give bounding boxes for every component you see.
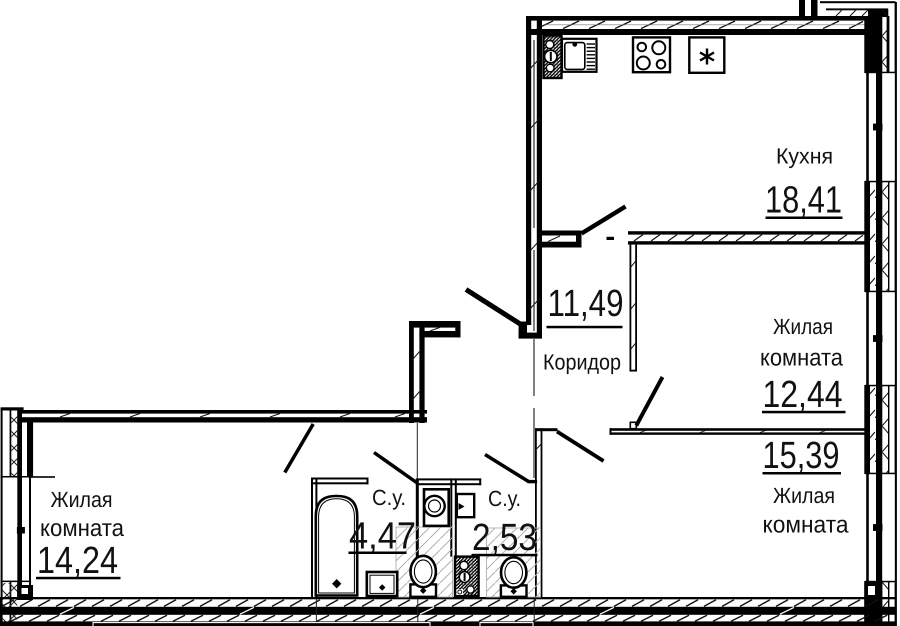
svg-text:18,41: 18,41 (765, 180, 842, 222)
svg-text:11,49: 11,49 (548, 283, 624, 325)
svg-text:Кухня: Кухня (776, 144, 833, 169)
svg-text:2,53: 2,53 (472, 517, 537, 559)
svg-text:комната: комната (763, 512, 850, 539)
svg-text:комната: комната (760, 345, 844, 372)
svg-text:Коридор: Коридор (543, 350, 621, 375)
svg-text:Жилая: Жилая (773, 483, 835, 508)
svg-text:С.у.: С.у. (488, 486, 521, 511)
svg-text:С.у.: С.у. (372, 485, 406, 510)
svg-text:15,39: 15,39 (763, 435, 840, 477)
svg-text:4,47: 4,47 (349, 516, 416, 558)
svg-text:12,44: 12,44 (763, 374, 843, 416)
svg-text:комната: комната (40, 515, 125, 542)
svg-text:Жилая: Жилая (51, 487, 113, 512)
svg-text:14,24: 14,24 (37, 540, 118, 582)
svg-text:Жилая: Жилая (773, 314, 833, 339)
